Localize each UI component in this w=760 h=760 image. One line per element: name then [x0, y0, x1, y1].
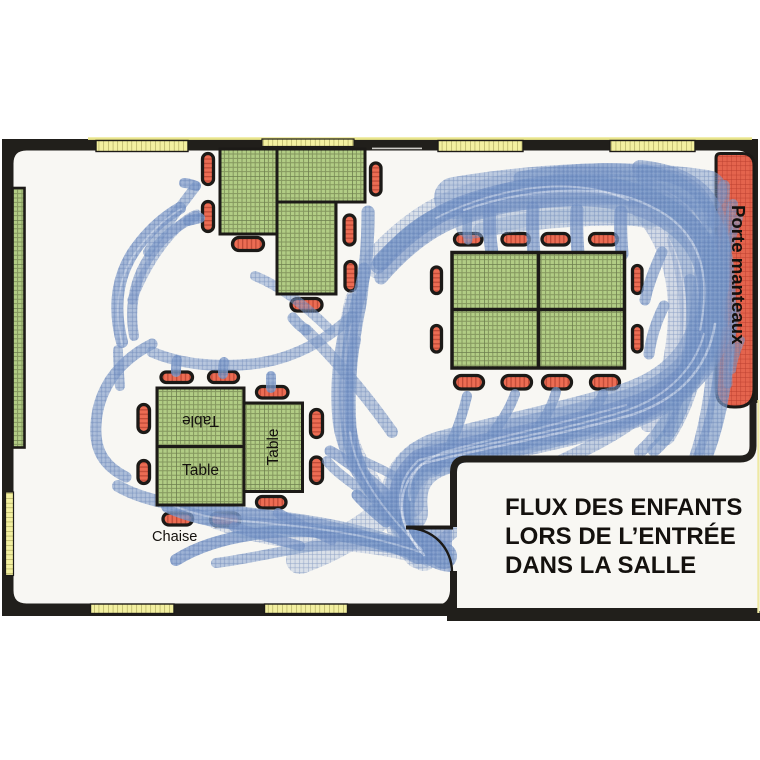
svg-text:Chaise: Chaise	[152, 529, 197, 545]
svg-text:Table: Table	[182, 412, 219, 429]
svg-text:Table: Table	[182, 462, 219, 479]
svg-text:Porte manteaux: Porte manteaux	[728, 205, 749, 345]
svg-text:Table: Table	[265, 428, 282, 465]
svg-text:LORS DE L’ENTRÉE: LORS DE L’ENTRÉE	[505, 522, 736, 550]
svg-text:FLUX DES ENFANTS: FLUX DES ENFANTS	[505, 494, 742, 521]
svg-text:DANS LA SALLE: DANS LA SALLE	[505, 552, 696, 579]
